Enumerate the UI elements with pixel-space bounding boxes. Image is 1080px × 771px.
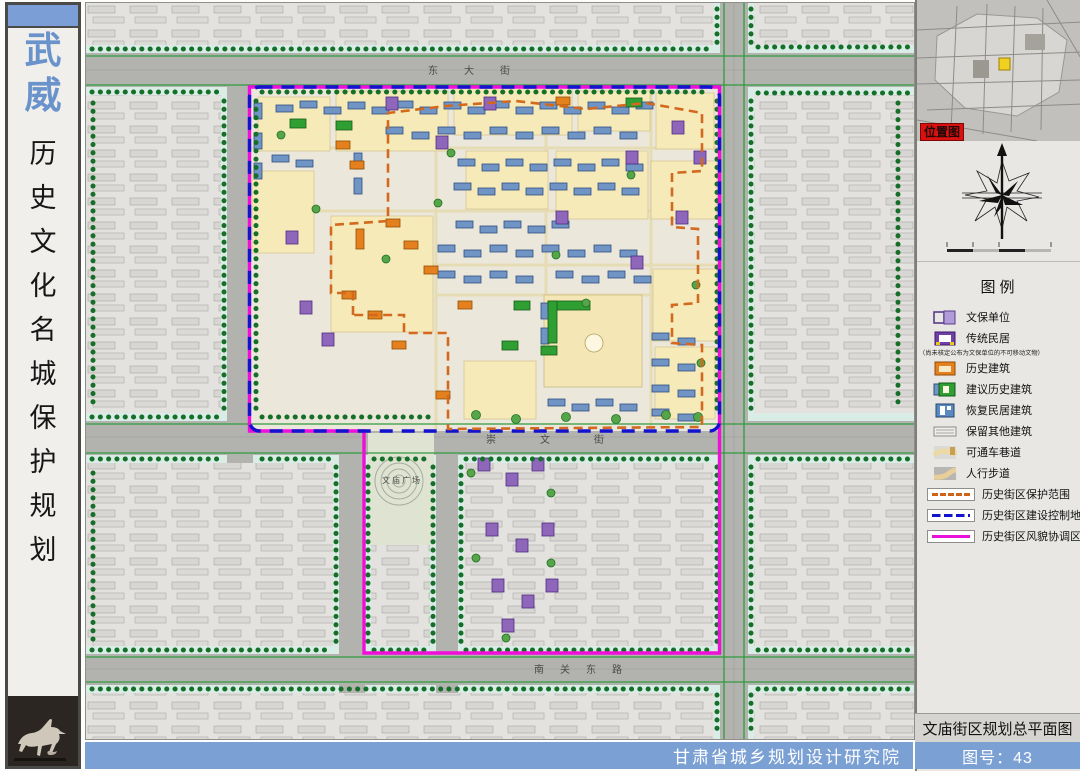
legend-note: （尚未核定公布为文保单位的不可移动文物）: [919, 347, 1075, 357]
footpath-icon: [933, 466, 957, 481]
label-top-street: 东大街: [428, 64, 536, 77]
inset-label: 位置图: [920, 123, 964, 141]
historic-building-icon: [933, 361, 957, 376]
legend-item-footpath: 人行步道: [933, 463, 1080, 483]
style-coordination-swatch: [927, 530, 975, 543]
legend-line-protection-scope: 历史街区保护范围: [927, 484, 1080, 504]
school-courtyard-circle: [585, 334, 603, 352]
protected-unit-icon: [933, 310, 957, 325]
title-sidebar: 武 威 历 史 文 化 名 城 保 护 规 划: [5, 2, 81, 769]
wenmiao-square-park: [368, 433, 434, 545]
plan-title-vertical: 历 史 文 化 名 城 保 护 规 划: [8, 132, 78, 572]
retained-other-icon: [933, 424, 957, 439]
legend-line-construction-control: 历史街区建设控制地带: [927, 505, 1080, 525]
legend-item-historic-building: 历史建筑: [933, 358, 1080, 378]
construction-control-swatch: [927, 509, 975, 522]
legend-title: 图例: [917, 276, 1080, 297]
protection-scope-swatch: [927, 488, 975, 501]
site-marker: [999, 58, 1010, 70]
sheet-number: 图号：43: [915, 742, 1080, 769]
legend-line-style-coordination: 历史街区风貌协调区: [927, 526, 1080, 546]
sheet-title: 文庙街区规划总平面图: [915, 713, 1080, 743]
city-name-char: 武: [8, 28, 78, 73]
restored-dwelling-icon: [933, 403, 957, 418]
institute-bar: 甘肃省城乡规划设计研究院: [85, 742, 913, 769]
legend-item-protected-unit: 文保单位: [933, 307, 1080, 327]
right-panel: 位置图: [915, 0, 1080, 771]
proposed-historic-icon: [933, 382, 957, 397]
flying-horse-logo: [8, 696, 78, 766]
compass-and-scale: [917, 141, 1080, 261]
legend-item-restored-dwelling: 恢复民居建筑: [933, 400, 1080, 420]
legend-item-retained-other: 保留其他建筑: [933, 421, 1080, 441]
legend-item-vehicle-lane: 可通车巷道: [933, 442, 1080, 462]
legend-item-proposed-historic: 建议历史建筑: [933, 379, 1080, 399]
master-plan-map: 东大街 崇文街 南关东路 文庙广场: [85, 2, 915, 740]
legend: 图例 文保单位 传统民居 （尚未核定公布为文保单位的不可移动文物）: [917, 261, 1080, 547]
sidebar-header-band: [8, 5, 78, 28]
label-bottom-street: 南关东路: [534, 663, 638, 676]
label-wenmiao-square: 文庙广场: [382, 475, 422, 485]
plan-sheet: 武 威 历 史 文 化 名 城 保 护 规 划: [0, 0, 1080, 771]
scale-bar: [947, 242, 1051, 252]
map-canvas: 东大街 崇文街 南关东路 文庙广场: [86, 3, 914, 739]
city-name-char: 威: [8, 73, 78, 118]
traditional-dwelling-icon: [933, 331, 957, 346]
location-inset-map: 位置图: [917, 0, 1080, 141]
legend-item-traditional-dwelling: 传统民居: [933, 328, 1080, 348]
label-middle-street: 崇文街: [486, 433, 648, 446]
vehicle-lane-icon: [933, 445, 957, 460]
